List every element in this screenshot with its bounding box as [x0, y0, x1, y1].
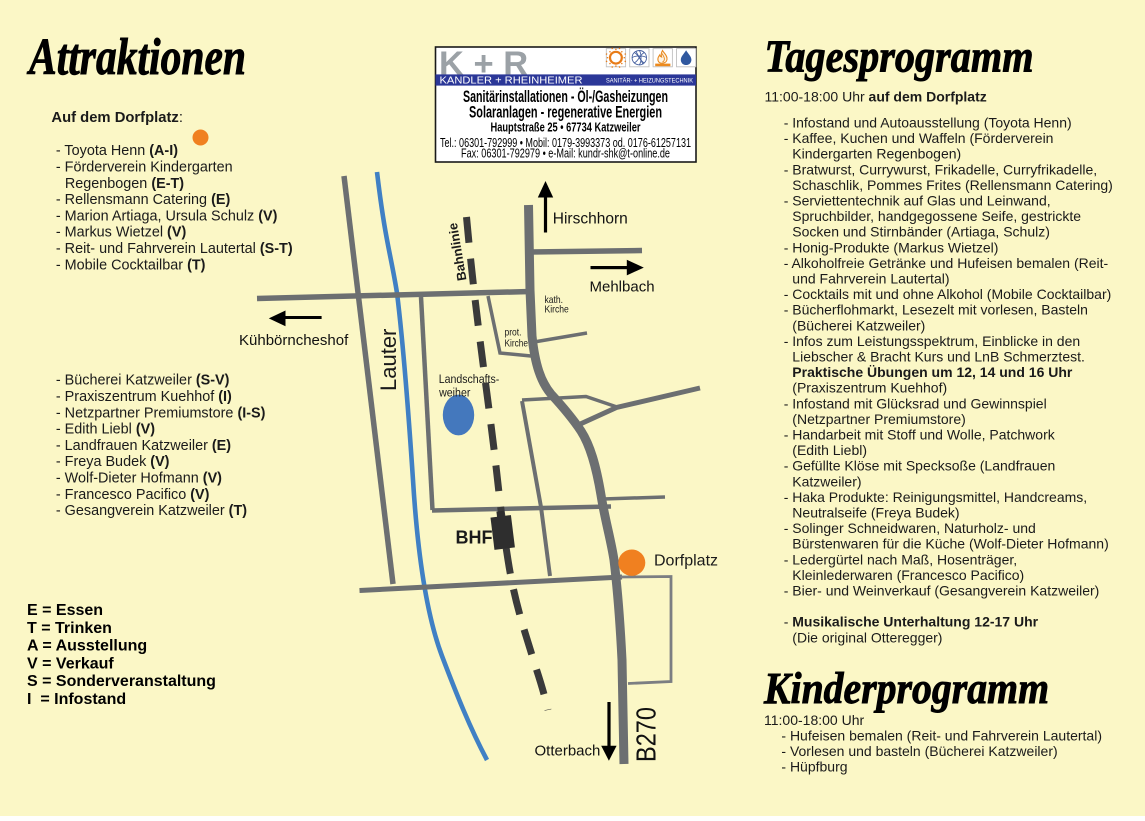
- svg-text:(Netzpartner Premiumstore): (Netzpartner Premiumstore): [792, 411, 966, 427]
- svg-text:- Freya Budek (V): - Freya Budek (V): [56, 454, 170, 470]
- svg-text:- Rellensmann Catering (E): - Rellensmann Catering (E): [56, 192, 231, 208]
- svg-text:- Bücherflohmarkt, Lesezelt mi: - Bücherflohmarkt, Lesezelt mit vorlesen…: [784, 302, 1088, 318]
- svg-text:- Bratwurst, Currywurst, Frika: - Bratwurst, Currywurst, Frikadelle, Cur…: [784, 161, 1098, 177]
- svg-text:- Marion Artiaga, Ursula Schul: - Marion Artiaga, Ursula Schulz (V): [56, 208, 278, 224]
- svg-text:- Edith Liebl (V): - Edith Liebl (V): [56, 422, 155, 438]
- svg-text:Kühbörncheshof: Kühbörncheshof: [239, 332, 349, 349]
- svg-text:Tagesprogramm: Tagesprogramm: [765, 31, 1034, 82]
- svg-text:- Honig-Produkte (Markus Wietz: - Honig-Produkte (Markus Wietzel): [784, 239, 999, 255]
- svg-text:- Infostand und Autoausstellun: - Infostand und Autoausstellung (Toyota …: [784, 115, 1072, 131]
- svg-text:Liebscher & Bracht Kurs und Ln: Liebscher & Bracht Kurs und LnB Schmerzt…: [792, 349, 1085, 365]
- svg-text:- Solinger Schneidwaren, Natur: - Solinger Schneidwaren, Naturholz- und: [784, 520, 1036, 536]
- svg-text:I = Infostand: I = Infostand: [27, 691, 126, 708]
- svg-text:Kleinlederwaren (Francesco Pac: Kleinlederwaren (Francesco Pacifico): [792, 567, 1024, 583]
- svg-text:- Haka Produkte: Reinigungsmit: - Haka Produkte: Reinigungsmittel, Handc…: [784, 489, 1087, 505]
- svg-text:Kirche: Kirche: [505, 337, 529, 349]
- svg-text:(Edith Liebl): (Edith Liebl): [792, 442, 867, 458]
- svg-text:Kirche: Kirche: [545, 304, 569, 316]
- svg-text:S = Sonderveranstaltung: S = Sonderveranstaltung: [27, 673, 216, 690]
- svg-text:Schaschlik, Pommes Frites (Rel: Schaschlik, Pommes Frites (Rellensmann C…: [792, 177, 1113, 193]
- svg-text:SANITÄR- + HEIZUNGSTECHNIK: SANITÄR- + HEIZUNGSTECHNIK: [606, 77, 694, 85]
- svg-text:- Hufeisen bemalen (Reit- und: - Hufeisen bemalen (Reit- und Fahrverein…: [781, 727, 1102, 743]
- svg-text:- Handarbeit mit Stoff und Wol: - Handarbeit mit Stoff und Wolle, Patchw…: [784, 427, 1056, 443]
- svg-text:Dorfplatz: Dorfplatz: [654, 553, 718, 570]
- svg-text:- Cocktails mit und ohne Alkoh: - Cocktails mit und ohne Alkohol (Mobile…: [784, 286, 1112, 302]
- svg-text:Hirschhorn: Hirschhorn: [553, 210, 628, 227]
- svg-text:Attraktionen: Attraktionen: [27, 29, 246, 86]
- svg-text:- Landfrauen Katzweiler (E): - Landfrauen Katzweiler (E): [56, 438, 231, 454]
- svg-text:- Infos zum Leistungsspektrum,: - Infos zum Leistungsspektrum, Einblicke…: [784, 333, 1080, 349]
- svg-text:weiher: weiher: [438, 385, 470, 399]
- svg-text:Neutralseife (Freya Budek): Neutralseife (Freya Budek): [792, 505, 959, 521]
- svg-text:- Toyota Henn (A-I): - Toyota Henn (A-I): [56, 143, 178, 159]
- svg-text:- Netzpartner Premiumstore (I-: - Netzpartner Premiumstore (I-S): [56, 405, 266, 421]
- svg-text:- Ledergürtel nach Maß, Hosent: - Ledergürtel nach Maß, Hosenträger,: [784, 551, 1017, 567]
- svg-text:Lauter: Lauter: [376, 329, 401, 391]
- svg-text:Socken und Stirnbänder (Artiag: Socken und Stirnbänder (Artiaga, Schulz): [792, 224, 1050, 240]
- svg-text:Kinderprogramm: Kinderprogramm: [763, 664, 1049, 713]
- svg-text:Kindergarten Regenbogen): Kindergarten Regenbogen): [792, 146, 961, 162]
- svg-text:Auf dem Dorfplatz:: Auf dem Dorfplatz:: [51, 110, 183, 126]
- svg-text:- Francesco Pacifico (V): - Francesco Pacifico (V): [56, 487, 210, 503]
- svg-text:11:00-18:00 Uhr: 11:00-18:00 Uhr: [764, 712, 864, 728]
- svg-text:A = Ausstellung: A = Ausstellung: [27, 638, 147, 655]
- svg-text:- Bücherei Katzweiler (S-V): - Bücherei Katzweiler (S-V): [56, 373, 230, 389]
- svg-text:(Die original Otteregger): (Die original Otteregger): [792, 629, 942, 645]
- svg-text:- Gesangverein Katzweiler (T): - Gesangverein Katzweiler (T): [56, 503, 247, 519]
- svg-text:- Kaffee, Kuchen und Waffeln (: - Kaffee, Kuchen und Waffeln (Fördervere…: [784, 130, 1054, 146]
- svg-text:Fax: 06301-792979 • e-Mail: ku: Fax: 06301-792979 • e-Mail: kundr-shk@t-…: [461, 145, 670, 160]
- svg-text:- Vorlesen und basteln (Bücher: - Vorlesen und basteln (Bücherei Katzwei…: [781, 743, 1057, 759]
- svg-text:- Hüpfburg: - Hüpfburg: [781, 759, 847, 775]
- svg-text:V = Verkauf: V = Verkauf: [27, 655, 114, 672]
- svg-text:- Mobile Cocktailbar (T): - Mobile Cocktailbar (T): [56, 257, 206, 273]
- svg-text:KANDLER + RHEINHEIMER: KANDLER + RHEINHEIMER: [440, 75, 583, 86]
- svg-text:- Reit- und Fahrverein Lautert: - Reit- und Fahrverein Lautertal (S-T): [56, 241, 293, 257]
- svg-text:(Praxiszentrum Kuehhof): (Praxiszentrum Kuehhof): [792, 380, 947, 396]
- svg-text:(Bücherei Katzweiler): (Bücherei Katzweiler): [792, 317, 925, 333]
- svg-text:- Serviettentechnik auf Glas u: - Serviettentechnik auf Glas und Leinwan…: [784, 193, 1051, 209]
- svg-text:- Wolf-Dieter Hofmann (V): - Wolf-Dieter Hofmann (V): [56, 471, 222, 487]
- svg-text:Regenbogen (E-T): Regenbogen (E-T): [65, 176, 184, 192]
- svg-text:- Alkoholfreie Getränke und Hu: - Alkoholfreie Getränke und Hufeisen bem…: [784, 255, 1109, 271]
- svg-text:Otterbach: Otterbach: [535, 743, 601, 760]
- svg-text:Katzweiler): Katzweiler): [792, 473, 861, 489]
- svg-text:- Förderverein Kindergarten: - Förderverein Kindergarten: [56, 160, 233, 176]
- svg-text:T = Trinken: T = Trinken: [27, 620, 112, 637]
- svg-text:Spruchbilder, handgegossene Se: Spruchbilder, handgegossene Seife, gestr…: [792, 208, 1081, 224]
- svg-text:- Markus Wietzel (V): - Markus Wietzel (V): [56, 225, 187, 241]
- svg-text:B270: B270: [631, 707, 662, 762]
- svg-text:- Gefüllte Klöse mit Specksoße: - Gefüllte Klöse mit Specksoße (Landfrau…: [784, 458, 1056, 474]
- svg-text:BHF: BHF: [456, 528, 493, 548]
- svg-text:Praktische Übungen um 12, 14 u: Praktische Übungen um 12, 14 und 16 Uhr: [792, 364, 1073, 380]
- svg-text:und Fahrverein Lautertal): und Fahrverein Lautertal): [792, 271, 949, 287]
- svg-text:- Bier- und Weinverkauf (Gesan: - Bier- und Weinverkauf (Gesangverein Ka…: [784, 583, 1100, 599]
- svg-text:- Infostand mit Glücksrad und: - Infostand mit Glücksrad und Gewinnspie…: [784, 395, 1047, 411]
- svg-text:Landschafts-: Landschafts-: [439, 372, 500, 386]
- svg-text:Mehlbach: Mehlbach: [590, 279, 655, 296]
- svg-text:Bürstenwaren für die Küche (Wo: Bürstenwaren für die Küche (Wolf-Dieter …: [792, 536, 1108, 552]
- svg-text:- Musikalische Unterhaltung 12: - Musikalische Unterhaltung 12-17 Uhr: [784, 614, 1039, 630]
- svg-text:11:00-18:00 Uhr auf dem Dorfpl: 11:00-18:00 Uhr auf dem Dorfplatz: [765, 89, 987, 105]
- svg-text:- Praxiszentrum Kuehhof (I): - Praxiszentrum Kuehhof (I): [56, 389, 232, 405]
- svg-text:Hauptstraße 25 • 67734 Katzwei: Hauptstraße 25 • 67734 Katzweiler: [491, 120, 641, 135]
- svg-text:E = Essen: E = Essen: [27, 602, 103, 619]
